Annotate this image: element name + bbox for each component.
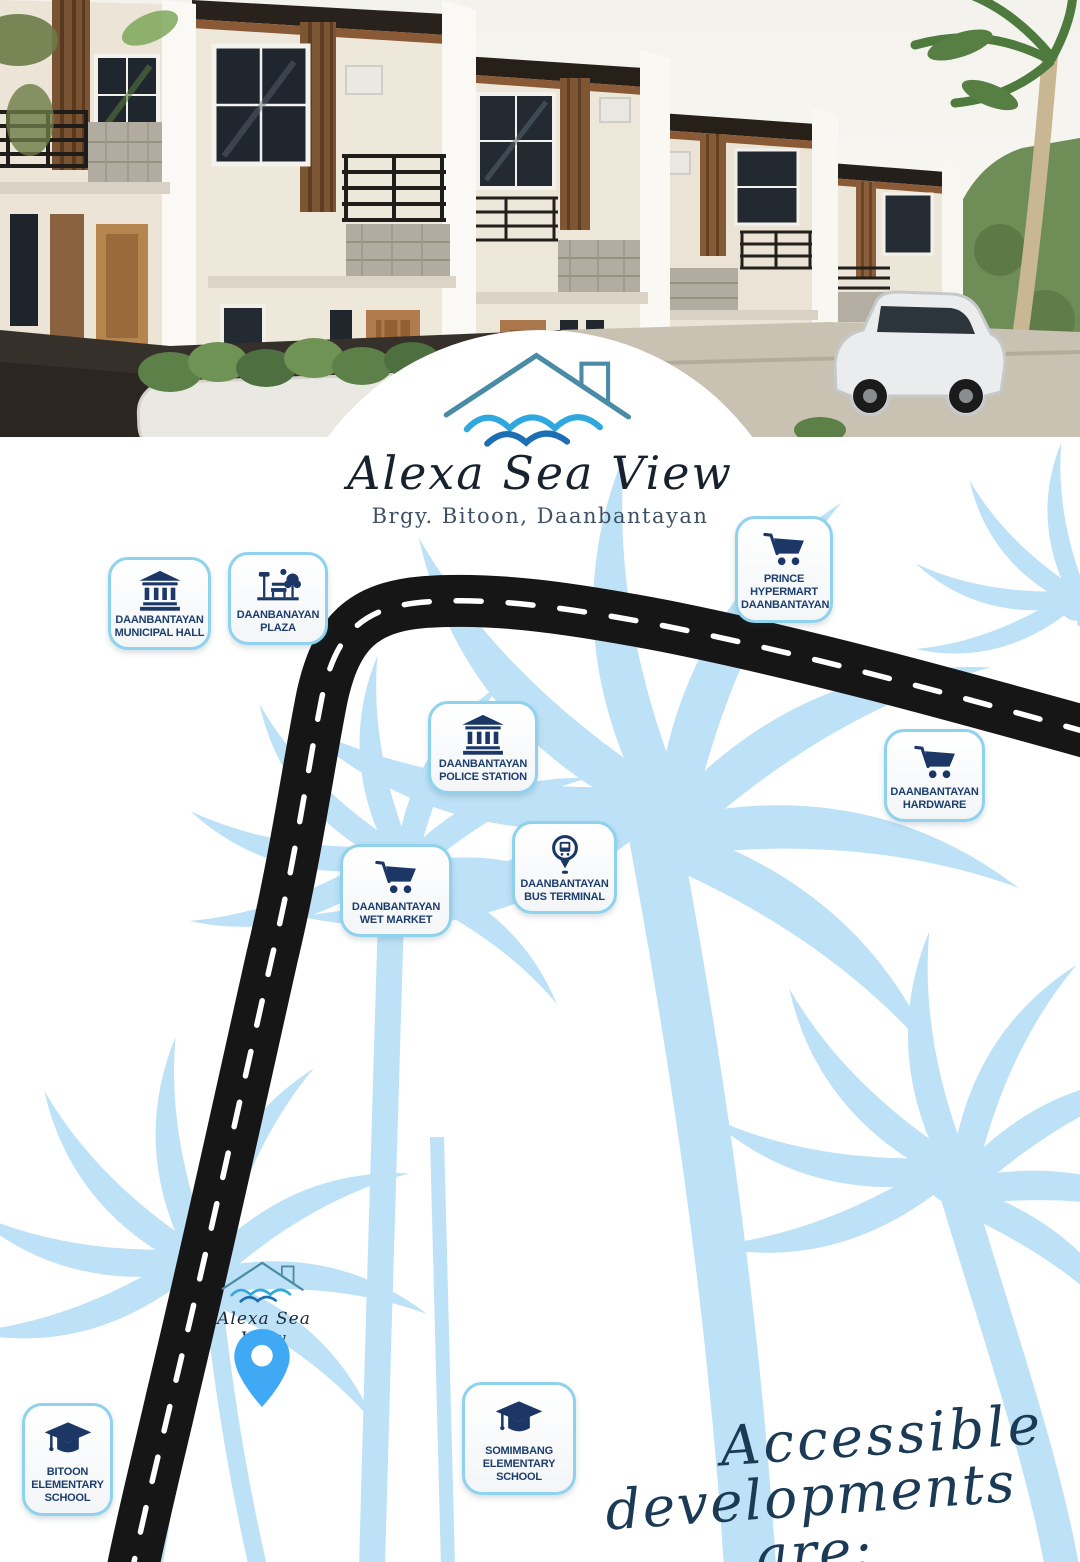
marker-label: DAANBANAYAN PLAZA [234, 609, 322, 635]
brand-location: Brgy. Bitoon, Daanbantayan [0, 504, 1080, 528]
flyer: Alexa Sea View Brgy. Bitoon, Daanbantaya… [0, 0, 1080, 1562]
shopping-cart-icon [761, 527, 807, 571]
map-marker-bus-terminal: DAANBANTAYAN BUS TERMINAL [512, 821, 617, 914]
park-icon [255, 563, 301, 607]
brand-name: Alexa Sea View [0, 450, 1080, 496]
bus-pin-icon [542, 832, 588, 876]
marker-label: DAANBANTAYAN MUNICIPAL HALL [114, 614, 205, 640]
marker-label: DAANBANTAYAN POLICE STATION [434, 758, 532, 784]
shopping-cart-icon [373, 855, 419, 899]
map-marker-hardware: DAANBANTAYAN HARDWARE [884, 729, 985, 822]
marker-label: DAANBANTAYAN BUS TERMINAL [518, 878, 611, 904]
map-marker-prince-hypermart: PRINCE HYPERMART DAANBANTAYAN [735, 516, 833, 623]
map-marker-municipal-hall: DAANBANTAYAN MUNICIPAL HALL [108, 557, 211, 650]
map-marker-bitoon-elementary: BITOON ELEMENTARY SCHOOL [22, 1403, 113, 1516]
government-building-icon [460, 712, 506, 756]
graduation-cap-icon [494, 1393, 544, 1443]
marker-label: PRINCE HYPERMART DAANBANTAYAN [741, 573, 827, 613]
marker-label: BITOON ELEMENTARY SCHOOL [28, 1466, 107, 1506]
graduation-cap-icon [43, 1414, 93, 1464]
map-marker-police-station: DAANBANTAYAN POLICE STATION [428, 701, 538, 794]
brand-logo: Alexa Sea View Brgy. Bitoon, Daanbantaya… [0, 333, 1080, 528]
map-marker-plaza: DAANBANAYAN PLAZA [228, 552, 328, 645]
house-waves-icon [214, 1253, 314, 1309]
marker-label: DAANBANTAYAN HARDWARE [890, 786, 979, 812]
house-waves-icon [423, 333, 658, 461]
marker-label: DAANBANTAYAN WET MARKET [346, 901, 446, 927]
government-building-icon [137, 568, 183, 612]
shopping-cart-icon [912, 740, 958, 784]
map-section: DAANBANTAYAN MUNICIPAL HALL DAANBANAYAN … [0, 437, 1080, 1562]
location-pin-icon [234, 1329, 290, 1407]
map-marker-wet-market: DAANBANTAYAN WET MARKET [340, 844, 452, 937]
